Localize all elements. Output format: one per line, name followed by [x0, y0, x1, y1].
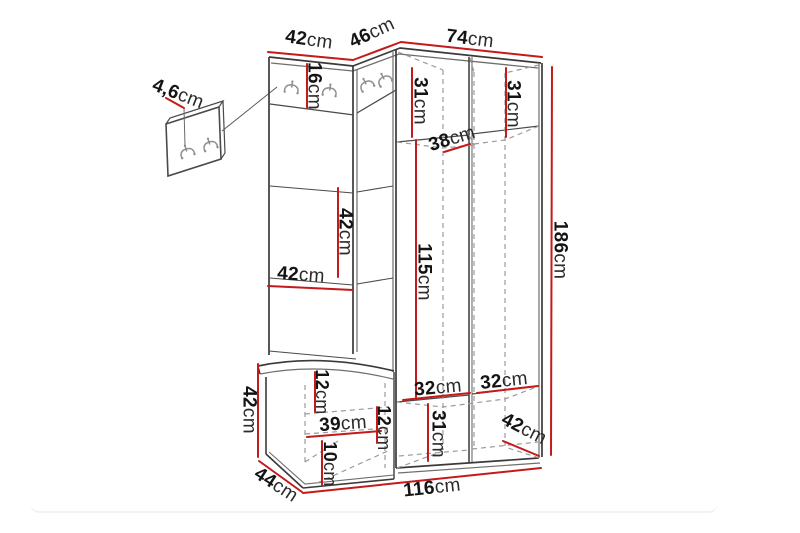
dim-panel-height: 42cm [336, 208, 355, 256]
dim-left-top-compartment-height: 31cm [411, 77, 430, 125]
dim-hook-board-height: 16cm [305, 62, 324, 110]
image-card-bottom-edge [30, 497, 718, 513]
dim-bench-niche-width: 39cm [319, 413, 368, 435]
dim-panel-width: 42cm [277, 264, 326, 286]
furniture-line-drawing [0, 0, 800, 533]
dim-bench-niche-height: 12cm [375, 405, 393, 450]
coat-hook-icon [177, 135, 219, 159]
dim-left-compartment-width: 32cm [413, 376, 462, 399]
coat-hook-icon [283, 69, 394, 97]
dim-bench-plinth-height: 10cm [321, 441, 339, 486]
dim-right-top-compartment-height: 31cm [504, 80, 523, 128]
dim-bench-height: 42cm [240, 386, 259, 434]
dimension-diagram: 4,6cm 42cm 46cm 74cm 16cm 31cm 31cm 38cm… [0, 0, 800, 533]
dim-hanging-space-height: 115cm [415, 243, 434, 301]
main-unit-outline [269, 48, 542, 473]
dim-line-42-panel-h [268, 286, 353, 290]
dim-total-height: 186cm [551, 221, 570, 280]
dim-seat-thickness: 12cm [313, 369, 331, 414]
dim-bottom-compartment-height: 31cm [429, 410, 448, 458]
dim-right-compartment-width: 32cm [479, 369, 528, 393]
unit-hook-board [270, 69, 396, 115]
